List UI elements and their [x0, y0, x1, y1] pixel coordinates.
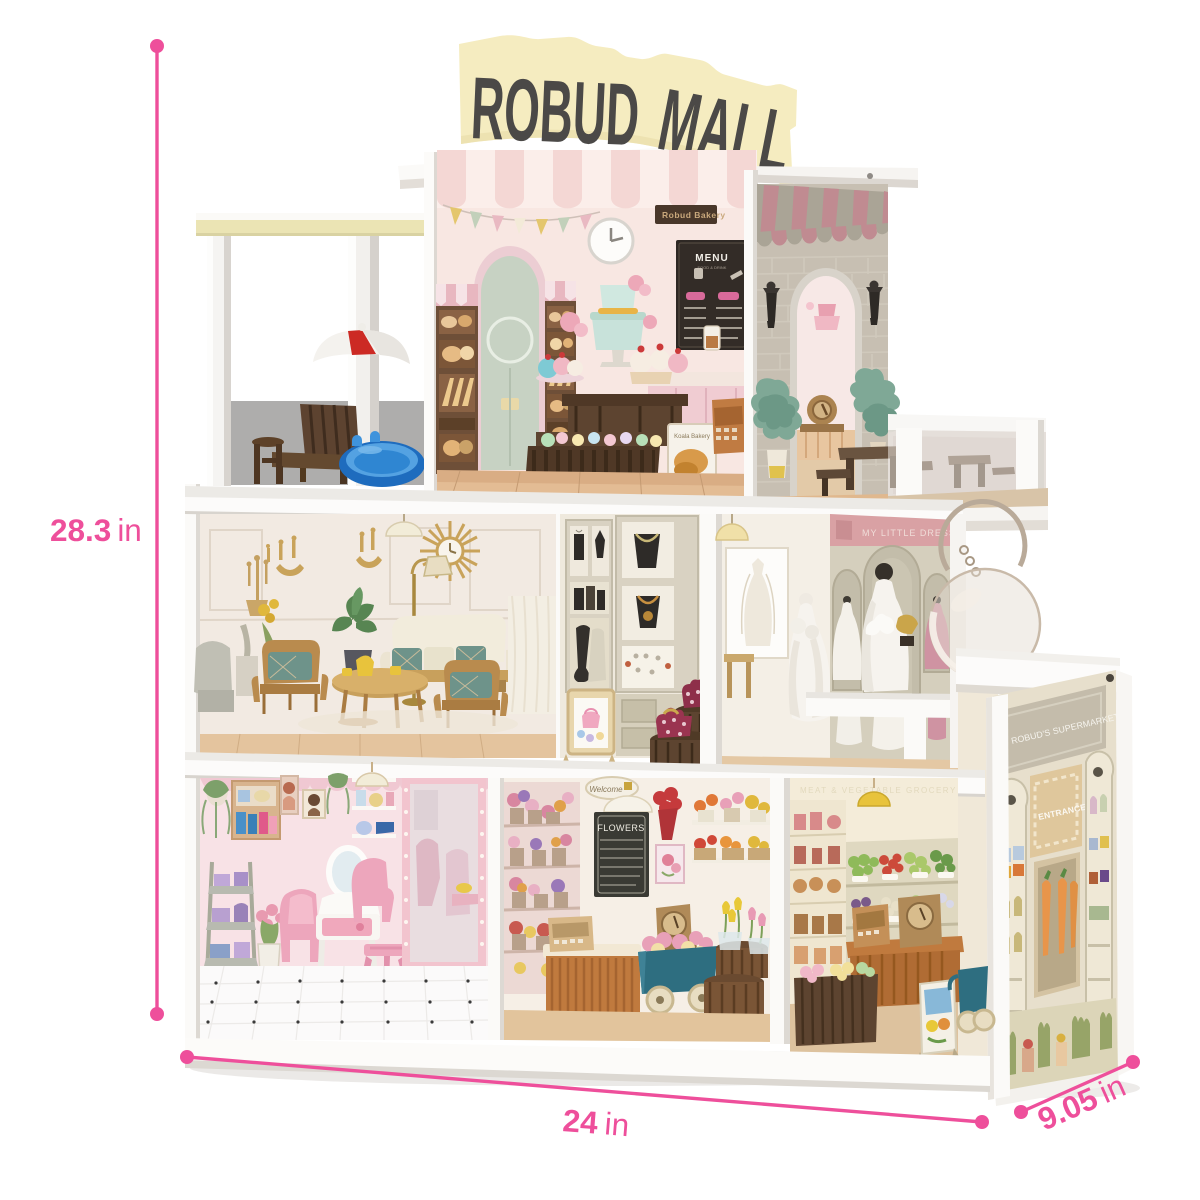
svg-text:24in: 24in	[561, 1102, 630, 1143]
svg-text:Welcome: Welcome	[589, 785, 623, 794]
svg-text:28.3in: 28.3in	[50, 512, 142, 548]
svg-text:FLOWERS: FLOWERS	[597, 823, 644, 833]
svg-text:Robud Bakery: Robud Bakery	[662, 210, 726, 220]
svg-text:MENU: MENU	[695, 253, 728, 264]
svg-text:ROBUD: ROBUD	[469, 59, 641, 165]
svg-text:Koala Bakery: Koala Bakery	[674, 434, 710, 440]
